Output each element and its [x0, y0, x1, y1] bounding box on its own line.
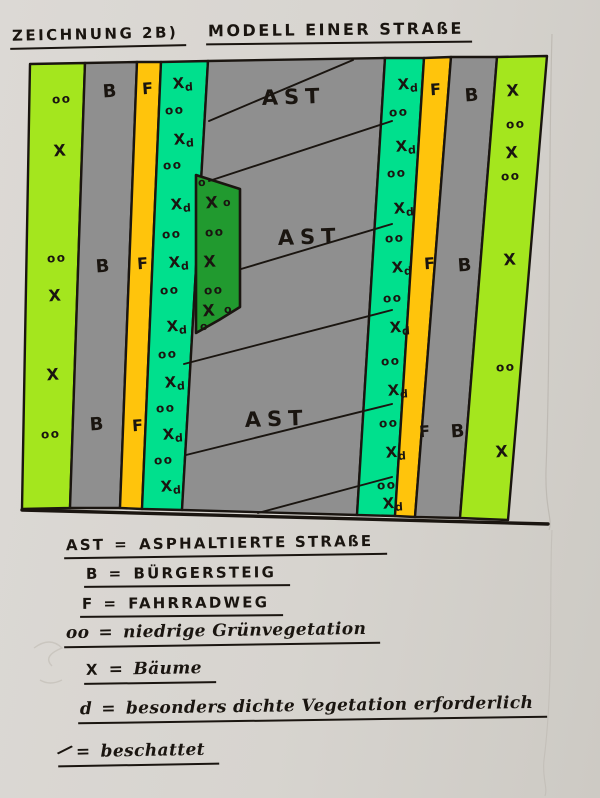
symbol-X: X: [506, 81, 520, 101]
legend-symbol-b: B: [86, 565, 100, 583]
symbol-B: B: [102, 81, 117, 103]
symbol-X: X: [202, 301, 216, 321]
equals-sign: =: [76, 742, 91, 762]
legend-row-ast: AST=ASPHALTIERTE STRAßE: [64, 531, 388, 560]
road-label-ast: AST: [261, 84, 326, 110]
legend-symbol-d: d: [80, 699, 93, 719]
symbol-X: X: [53, 141, 67, 161]
symbol-X: X: [46, 365, 60, 385]
equals-sign: =: [109, 565, 124, 583]
symbol-B: B: [95, 256, 110, 278]
pencil-scribble: [34, 642, 62, 683]
equals-sign: =: [103, 595, 118, 613]
legend-symbol-f: F: [82, 595, 95, 613]
legend-def-d: besonders dichte Vegetation erforderlich: [126, 693, 534, 719]
symbol-oo: oo: [389, 104, 409, 119]
symbol-oo: oo: [41, 426, 61, 441]
legend-def-f: FAHRRADWEG: [128, 593, 269, 612]
equals-sign: =: [109, 659, 124, 679]
symbol-oo: oo: [385, 230, 405, 245]
legend-def-b: BÜRGERSTEIG: [133, 563, 276, 582]
paper-crease-lower: [544, 530, 552, 796]
road-label-ast: AST: [277, 224, 342, 250]
symbol-oo: oo: [496, 359, 516, 374]
symbol-oo: oo: [387, 165, 407, 180]
paper-crease: [546, 34, 552, 530]
legend-def-slash: beschattet: [100, 740, 205, 762]
legend-def-x: Bäume: [133, 658, 202, 679]
legend-row-buergersteig: B=BÜRGERSTEIG: [84, 562, 290, 588]
symbol-oo: oo: [506, 116, 526, 131]
symbol-X: X: [48, 286, 62, 306]
symbol-oo: oo: [381, 353, 401, 368]
equals-sign: =: [114, 535, 129, 553]
symbol-oo: oo: [204, 282, 224, 297]
symbol-B: B: [450, 421, 465, 443]
symbol-X: X: [503, 250, 517, 270]
symbol-oo: oo: [501, 168, 521, 183]
symbol-o: o: [200, 320, 209, 334]
symbol-oo: oo: [47, 250, 67, 265]
symbol-oo: oo: [52, 91, 72, 106]
legend-symbol-ast: AST: [66, 536, 105, 555]
symbol-F: F: [141, 79, 153, 99]
symbol-X: X: [205, 193, 219, 213]
symbol-F: F: [136, 254, 148, 274]
symbol-oo: oo: [154, 452, 174, 467]
equals-sign: =: [101, 699, 116, 719]
legend-def-ast: ASPHALTIERTE STRAßE: [139, 532, 374, 553]
symbol-o: o: [198, 176, 207, 190]
street-diagram: ooXooXXooBBBFFFXdooXdooXdooXdooXdooXdooX…: [0, 0, 600, 530]
symbol-X: X: [505, 143, 519, 163]
legend-def-oo: niedrige Grünvegetation: [123, 619, 366, 642]
symbol-B: B: [464, 85, 479, 107]
symbol-oo: oo: [379, 415, 399, 430]
symbol-F: F: [418, 422, 430, 442]
symbol-X: X: [495, 442, 509, 462]
legend-symbol-oo: oo: [66, 623, 90, 643]
symbol-B: B: [89, 414, 104, 436]
symbol-oo: oo: [165, 102, 185, 117]
symbol-X: X: [203, 252, 217, 272]
symbol-oo: oo: [156, 400, 176, 415]
legend-row-vegetation: oo=niedrige Grünvegetation: [64, 619, 381, 648]
legend-row-baeume: X=Bäume: [84, 658, 216, 685]
symbol-oo: oo: [162, 226, 182, 241]
symbol-oo: oo: [377, 477, 397, 492]
road-label-ast: AST: [244, 406, 309, 432]
legend-row-beschattet: /=beschattet: [58, 738, 219, 768]
symbol-oo: oo: [158, 346, 178, 361]
equals-sign: =: [98, 623, 113, 643]
symbol-F: F: [429, 80, 441, 100]
symbol-o: o: [223, 196, 232, 210]
legend-row-fahrradweg: F=FAHRRADWEG: [80, 592, 283, 618]
symbol-F: F: [131, 416, 143, 436]
symbol-oo: oo: [383, 290, 403, 305]
symbol-oo: oo: [160, 282, 180, 297]
symbol-oo: oo: [163, 157, 183, 172]
symbol-B: B: [457, 255, 472, 277]
symbol-F: F: [423, 254, 435, 274]
paper-page: ZEICHNUNG 2B) MODELL EINER STRAßE ooXooX…: [0, 0, 600, 798]
legend-symbol-x: X: [86, 661, 100, 679]
legend-symbol-slash: /: [55, 740, 76, 760]
symbol-oo: oo: [205, 224, 225, 239]
symbol-o: o: [224, 303, 233, 317]
